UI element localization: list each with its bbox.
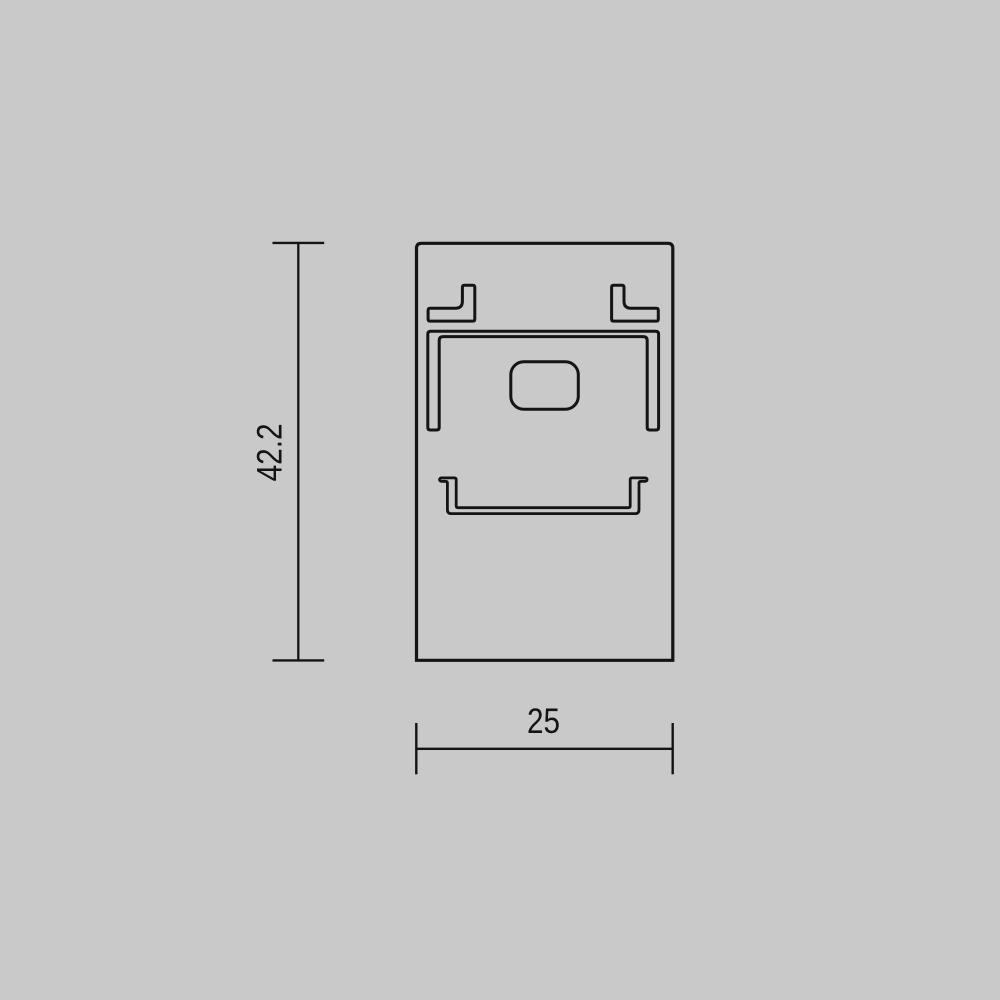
svg-text:25: 25 — [527, 702, 560, 741]
svg-text:42.2: 42.2 — [249, 423, 289, 481]
